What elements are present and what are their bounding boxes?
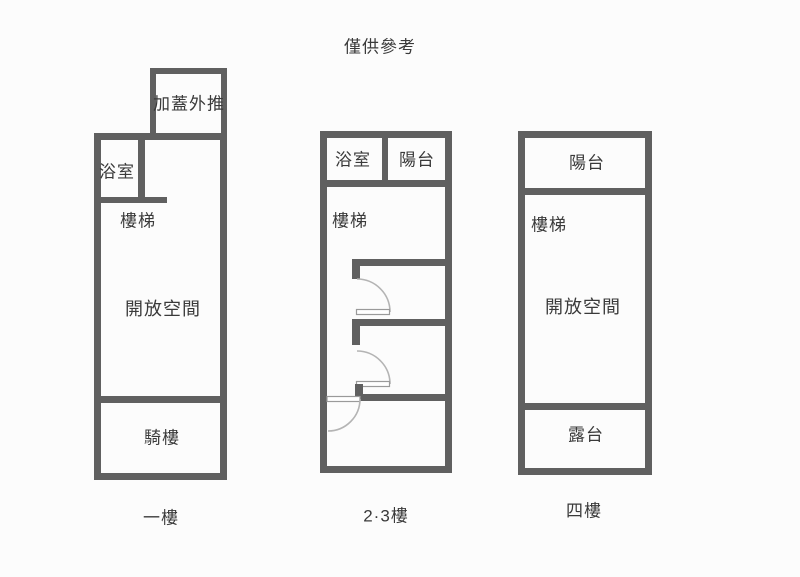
room-label-open-space-1f: 開放空間 [125, 300, 201, 318]
room-label-stairs-4f: 樓梯 [531, 217, 567, 234]
room-label-open-space-4f: 開放空間 [545, 298, 621, 316]
bathroom-wall-horizontal [94, 197, 167, 203]
plan-caption-4f: 四樓 [566, 503, 602, 520]
door-leaf-3 [327, 397, 360, 402]
bathroom-balcony-divider [382, 131, 388, 184]
plan-1f-walls [94, 71, 227, 477]
room-label-bathroom-23f: 浴室 [335, 152, 371, 169]
plan-caption-23f: 2·3樓 [363, 508, 409, 525]
arcade-divider-wall [94, 396, 227, 403]
room-wall-c [357, 394, 452, 401]
plan-23f-walls [320, 131, 452, 470]
door-swing-arc-1 [357, 279, 390, 312]
room-label-terrace: 露台 [568, 427, 604, 444]
room-label-extension: 加蓋外推 [153, 96, 225, 113]
door-jamb-a [352, 259, 360, 279]
room-wall-a [354, 259, 452, 266]
door-swing-arc-3 [328, 399, 360, 431]
sheet-title: 僅供參考 [344, 39, 416, 56]
door-swing-arc-2 [357, 351, 390, 384]
room-label-bathroom-1f: 浴室 [99, 164, 135, 181]
room-label-arcade: 騎樓 [144, 430, 180, 447]
room-label-stairs-23f: 樓梯 [332, 213, 368, 230]
door-jamb-b [352, 319, 360, 345]
room-label-balcony-23f: 陽台 [399, 152, 435, 169]
bathroom-wall-vertical [138, 133, 145, 203]
balcony-wall-horizontal [518, 188, 652, 195]
terrace-wall-horizontal [518, 403, 652, 410]
room-label-balcony-4f: 陽台 [569, 155, 605, 172]
plan-caption-1f: 一樓 [143, 510, 179, 527]
floor-plan-drawing [0, 0, 800, 577]
room-label-stairs-1f: 樓梯 [120, 213, 156, 230]
door-leaf-1 [357, 310, 390, 315]
room-wall-b [354, 319, 452, 326]
floor-plan-sheet: 僅供參考 加蓋外推 浴室 樓梯 開放空間 騎樓 一樓 浴室 陽台 樓梯 2·3樓… [0, 0, 800, 577]
